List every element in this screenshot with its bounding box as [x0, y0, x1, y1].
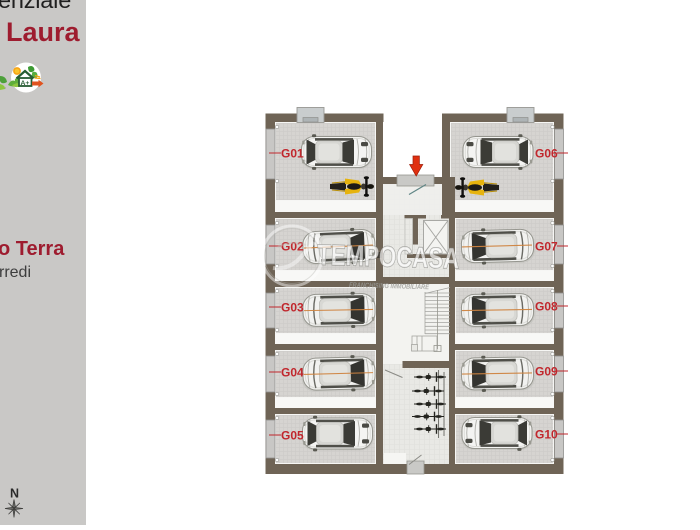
- svg-text:rredi: rredi: [0, 264, 31, 281]
- svg-text:G04: G04: [281, 366, 304, 380]
- svg-text:G03: G03: [281, 301, 304, 315]
- svg-text:G05: G05: [281, 429, 304, 443]
- svg-text:G08: G08: [535, 300, 558, 314]
- svg-text:G07: G07: [535, 240, 558, 254]
- svg-text:G02: G02: [281, 240, 304, 254]
- svg-text:N: N: [10, 487, 19, 501]
- svg-text:enziale: enziale: [0, 0, 71, 13]
- svg-text:G10: G10: [535, 428, 558, 442]
- svg-text:G09: G09: [535, 365, 558, 379]
- svg-text:A+: A+: [21, 80, 30, 87]
- svg-text:TEMPOCASA: TEMPOCASA: [317, 240, 460, 276]
- svg-text:G06: G06: [535, 147, 558, 161]
- svg-text:o Terra: o Terra: [0, 238, 65, 260]
- svg-text:G01: G01: [281, 147, 304, 161]
- svg-text:Laura: Laura: [6, 17, 81, 47]
